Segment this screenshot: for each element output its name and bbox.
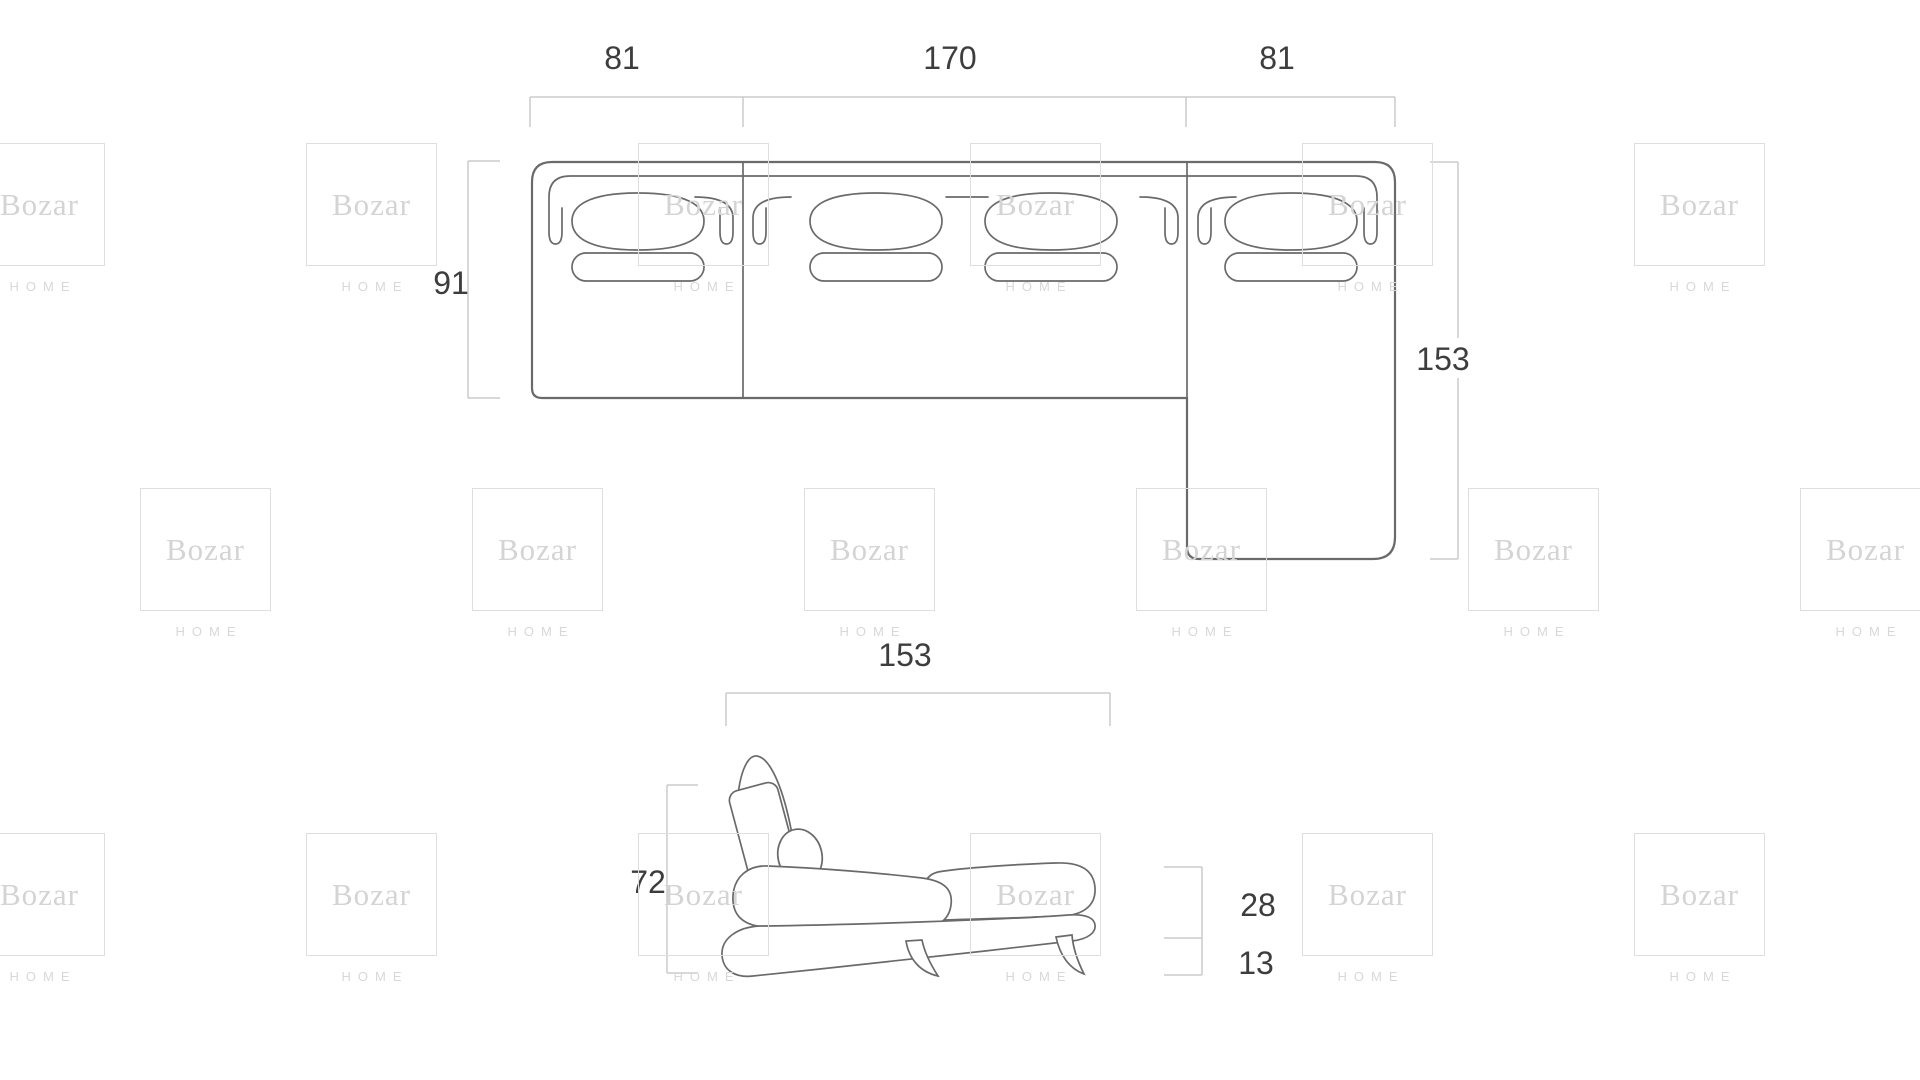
arm-leg [753, 197, 791, 244]
top-view: 81 170 81 91 153 [433, 40, 1480, 559]
dim-label-left-width: 81 [604, 40, 640, 76]
side-view: 153 72 28 13 [630, 637, 1276, 981]
sofa-dimension-diagram-page: 81 170 81 91 153 [0, 0, 1920, 1080]
dim-label-depth: 91 [433, 265, 469, 301]
rear-leg [1056, 935, 1084, 974]
dim-label-leg-height: 13 [1238, 945, 1274, 981]
dim-label-chaise-length: 153 [1416, 341, 1469, 377]
dim-chaise-length: 153 [1406, 162, 1480, 559]
dim-label-total-height: 72 [630, 864, 666, 900]
dim-seat-leg-heights: 28 13 [1164, 867, 1276, 981]
sofa-line-drawing: 81 170 81 91 153 [0, 0, 1920, 1080]
dim-total-height: 72 [630, 785, 698, 973]
dim-label-side-depth: 153 [878, 637, 931, 673]
dim-label-right-width: 81 [1259, 40, 1295, 76]
dim-label-middle-width: 170 [923, 40, 976, 76]
cushions [572, 193, 1357, 281]
dim-top-widths: 81 170 81 [530, 40, 1395, 127]
dim-side-depth: 153 [726, 637, 1110, 726]
seat-cushion [733, 866, 951, 928]
dim-body-depth: 91 [433, 161, 500, 398]
arm-leg [1140, 197, 1178, 244]
dim-label-seat-height: 28 [1240, 887, 1276, 923]
top-view-outline [532, 162, 1395, 559]
inner-frame [549, 176, 1377, 244]
arm-leg [695, 197, 733, 244]
arm-leg [1198, 197, 1236, 244]
